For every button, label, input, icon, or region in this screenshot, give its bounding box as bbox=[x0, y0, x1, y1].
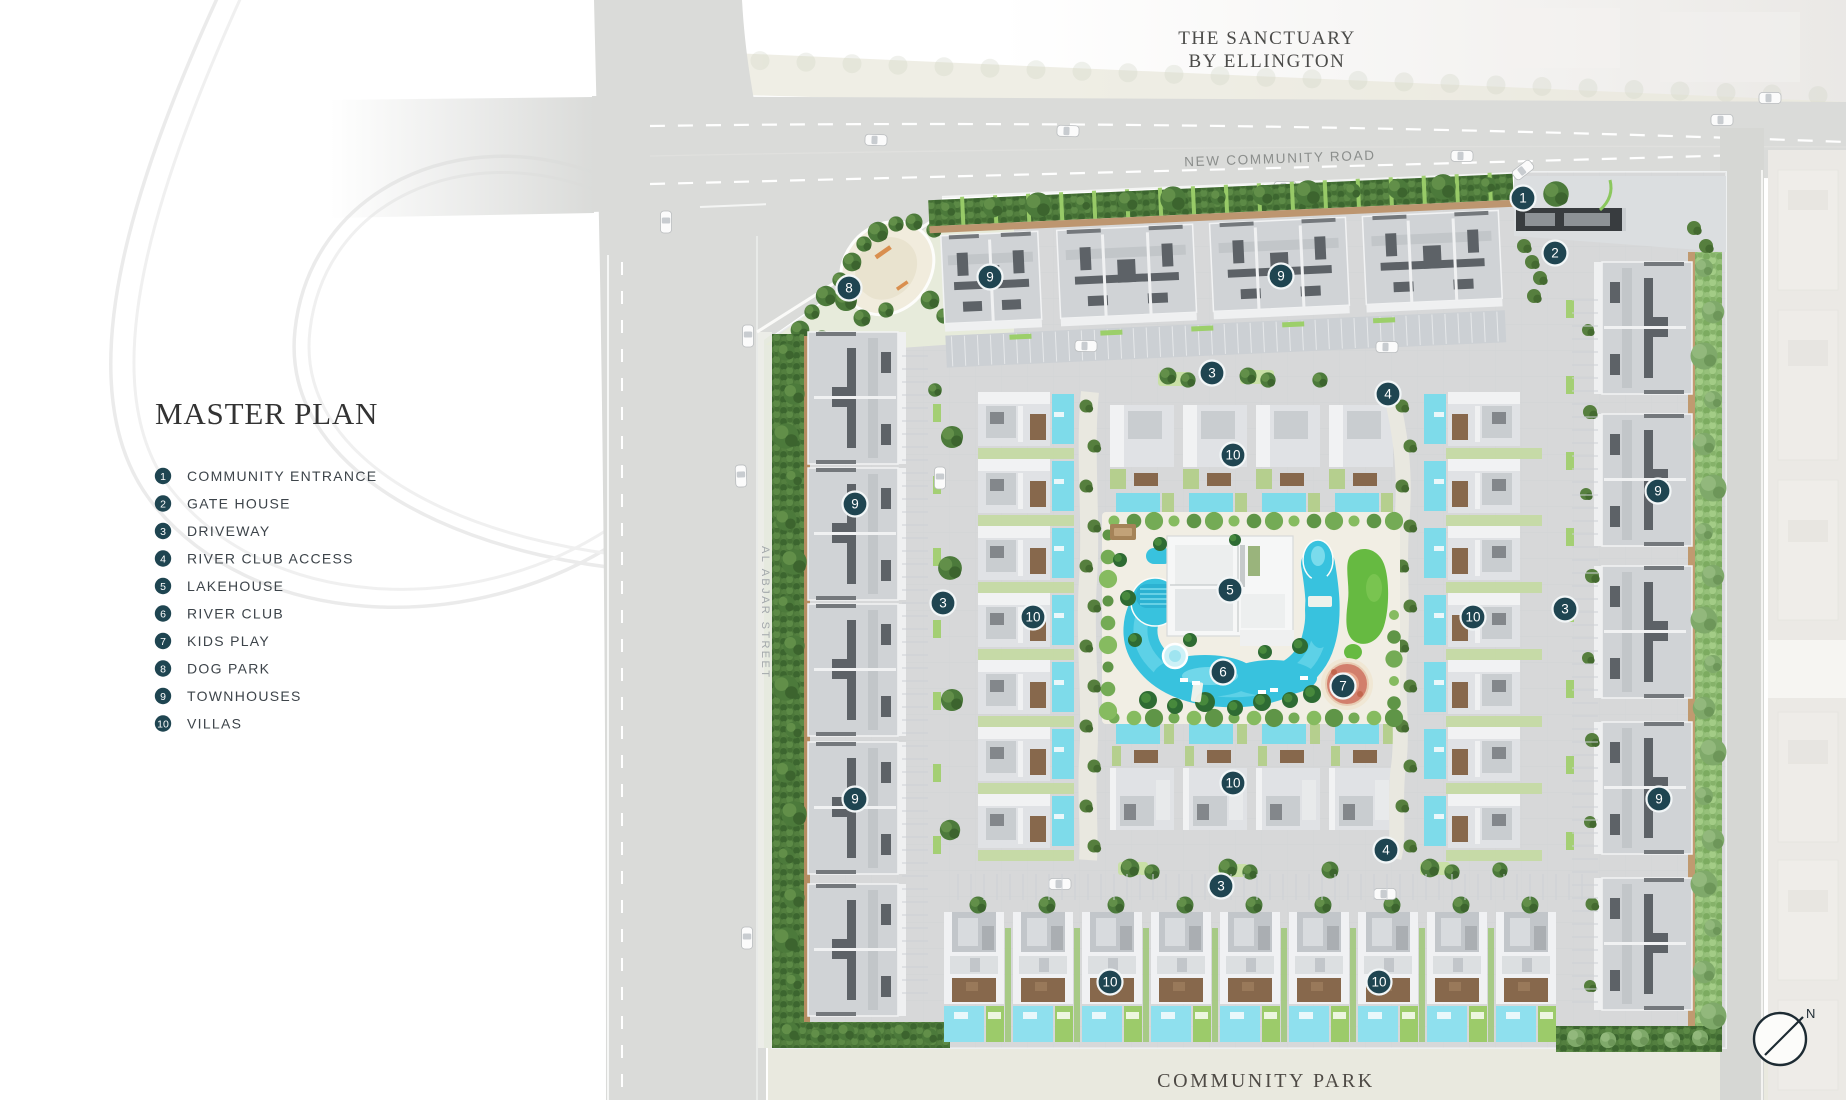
svg-text:1: 1 bbox=[160, 471, 166, 483]
svg-text:9: 9 bbox=[851, 792, 859, 807]
svg-text:3: 3 bbox=[1561, 602, 1569, 617]
svg-text:DOG PARK: DOG PARK bbox=[187, 661, 270, 677]
svg-text:9: 9 bbox=[160, 691, 166, 703]
svg-text:KIDS PLAY: KIDS PLAY bbox=[187, 633, 270, 649]
svg-text:RIVER CLUB ACCESS: RIVER CLUB ACCESS bbox=[187, 551, 354, 567]
svg-text:9: 9 bbox=[1655, 792, 1663, 807]
svg-text:RIVER CLUB: RIVER CLUB bbox=[187, 606, 284, 622]
svg-text:1: 1 bbox=[1519, 191, 1527, 206]
svg-text:3: 3 bbox=[939, 596, 947, 611]
svg-text:2: 2 bbox=[160, 498, 166, 510]
svg-text:7: 7 bbox=[1339, 679, 1347, 694]
svg-text:THE SANCTUARY: THE SANCTUARY bbox=[1178, 28, 1356, 49]
svg-text:COMMUNITY ENTRANCE: COMMUNITY ENTRANCE bbox=[187, 468, 377, 484]
svg-text:AL ABJAR STREET: AL ABJAR STREET bbox=[759, 546, 771, 679]
svg-text:LAKEHOUSE: LAKEHOUSE bbox=[187, 578, 284, 594]
svg-text:10: 10 bbox=[1102, 975, 1117, 990]
svg-text:10: 10 bbox=[1465, 610, 1480, 625]
svg-text:6: 6 bbox=[160, 608, 166, 620]
svg-text:4: 4 bbox=[160, 553, 166, 565]
svg-text:3: 3 bbox=[160, 526, 166, 538]
svg-text:10: 10 bbox=[157, 718, 169, 730]
svg-text:10: 10 bbox=[1225, 448, 1240, 463]
svg-text:2: 2 bbox=[1551, 246, 1559, 261]
svg-text:7: 7 bbox=[160, 636, 166, 648]
svg-text:5: 5 bbox=[1226, 583, 1234, 598]
svg-text:9: 9 bbox=[851, 497, 859, 512]
svg-text:3: 3 bbox=[1217, 879, 1225, 894]
svg-text:9: 9 bbox=[1654, 484, 1662, 499]
svg-text:DRIVEWAY: DRIVEWAY bbox=[187, 523, 271, 539]
svg-text:9: 9 bbox=[1277, 269, 1285, 284]
svg-text:10: 10 bbox=[1025, 610, 1040, 625]
svg-text:TOWNHOUSES: TOWNHOUSES bbox=[187, 688, 302, 704]
svg-text:N: N bbox=[1806, 1006, 1815, 1021]
svg-text:4: 4 bbox=[1382, 843, 1390, 858]
svg-text:BY ELLINGTON: BY ELLINGTON bbox=[1189, 51, 1346, 72]
svg-text:5: 5 bbox=[160, 581, 166, 593]
svg-text:9: 9 bbox=[986, 270, 994, 285]
svg-text:6: 6 bbox=[1219, 665, 1227, 680]
svg-text:10: 10 bbox=[1225, 776, 1240, 791]
svg-text:8: 8 bbox=[845, 281, 853, 296]
svg-text:4: 4 bbox=[1384, 387, 1392, 402]
svg-text:VILLAS: VILLAS bbox=[187, 716, 242, 732]
svg-text:GATE HOUSE: GATE HOUSE bbox=[187, 496, 291, 512]
svg-text:8: 8 bbox=[160, 663, 166, 675]
svg-text:3: 3 bbox=[1208, 366, 1216, 381]
svg-text:MASTER PLAN: MASTER PLAN bbox=[155, 396, 378, 431]
svg-text:COMMUNITY PARK: COMMUNITY PARK bbox=[1157, 1070, 1375, 1092]
svg-text:10: 10 bbox=[1371, 975, 1386, 990]
